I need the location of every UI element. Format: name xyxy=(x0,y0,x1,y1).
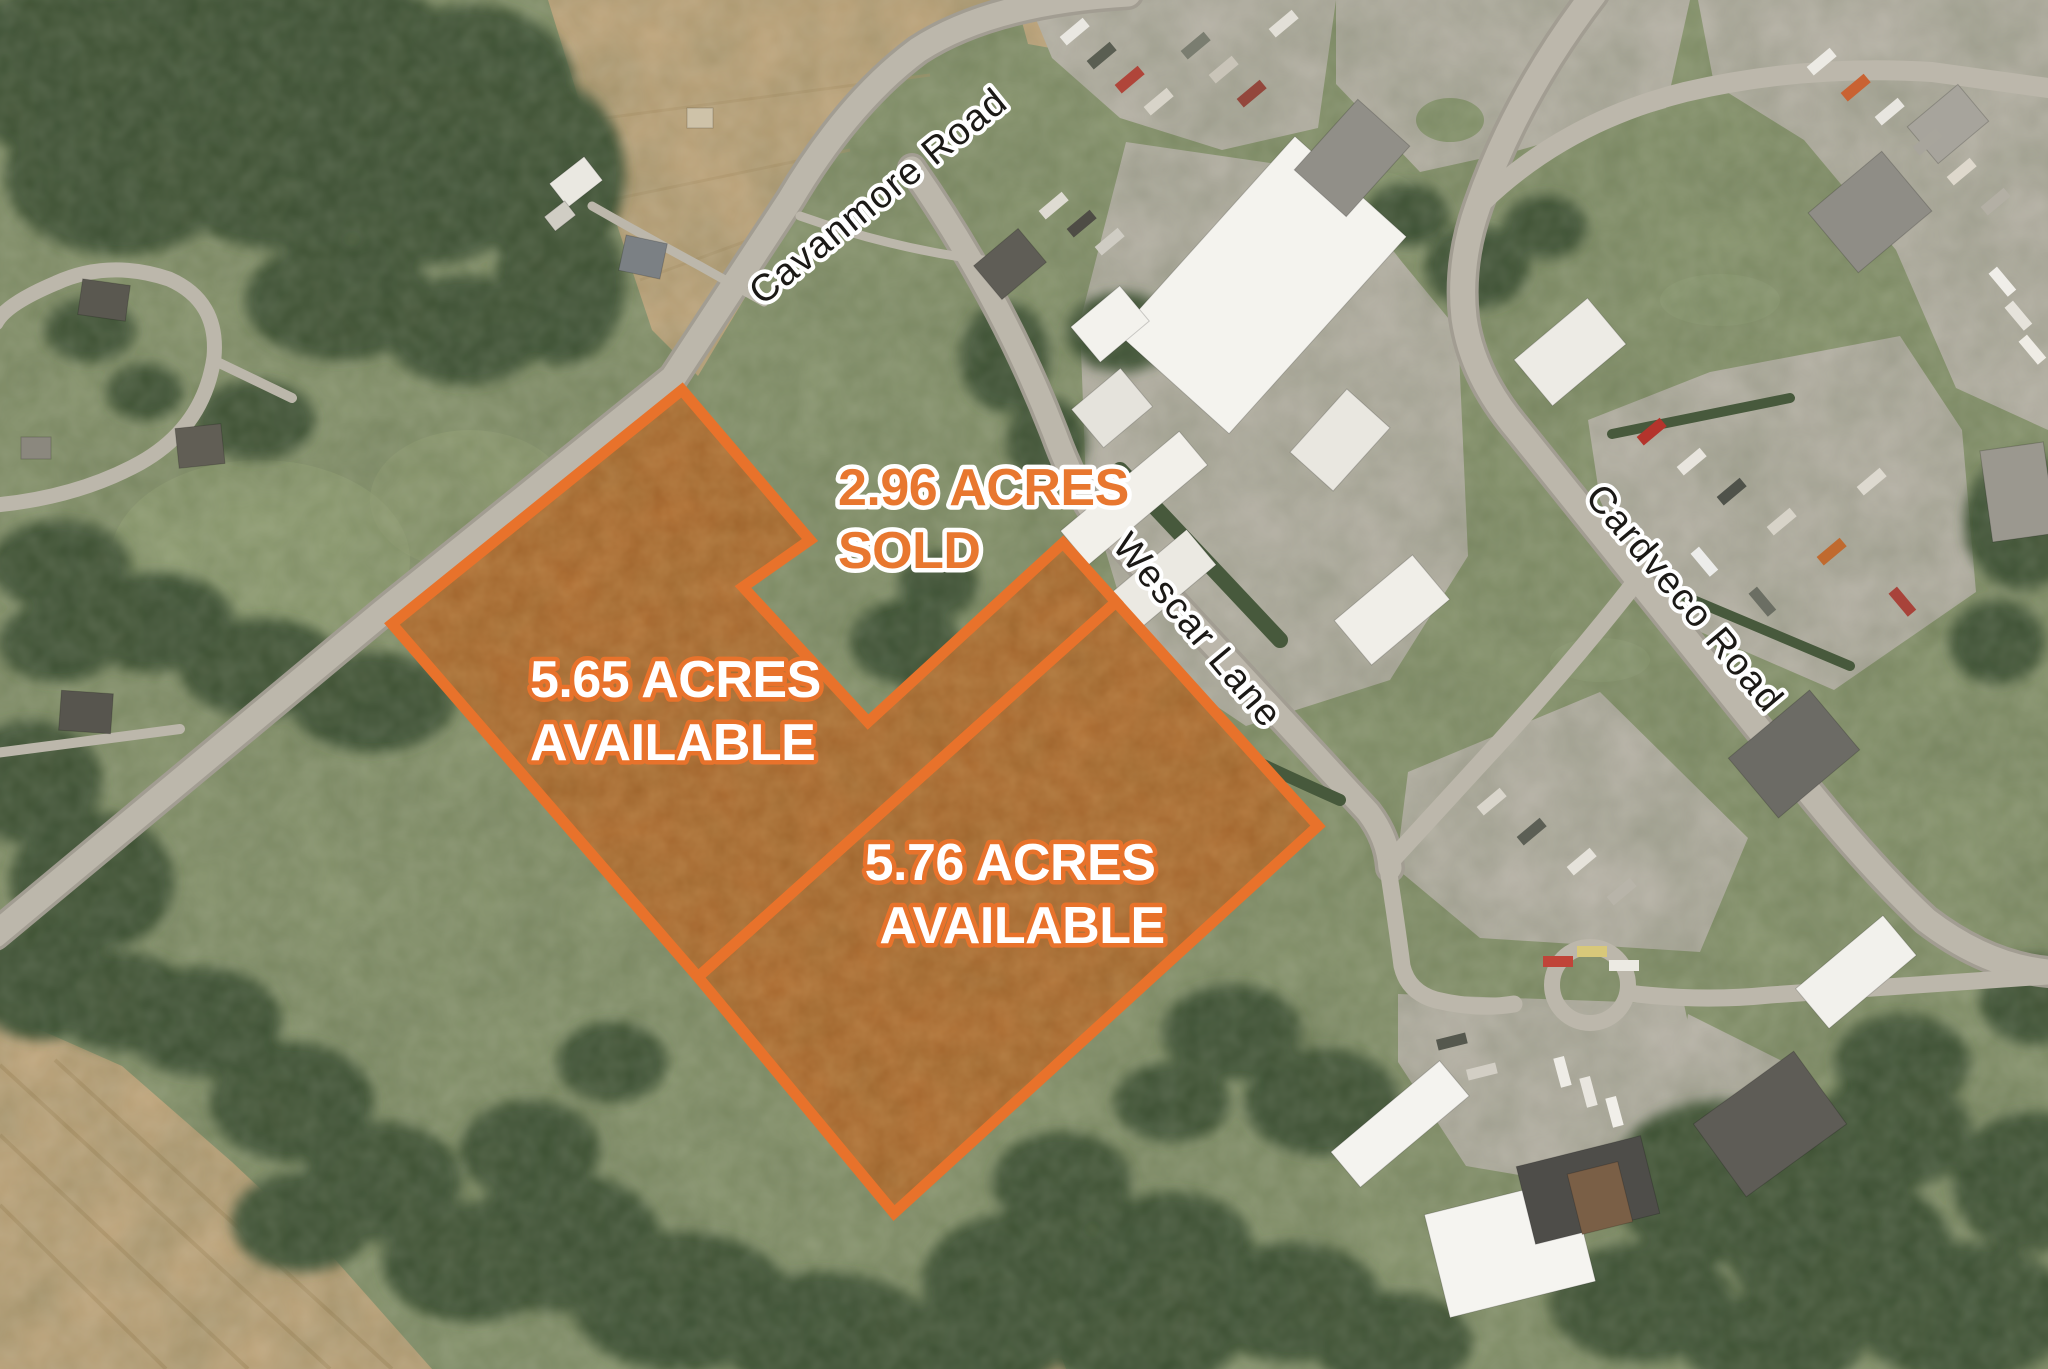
parcel-576-label-line1: 5.76 ACRES xyxy=(865,834,1156,892)
satellite-map: 2.96 ACRES SOLD 5.65 ACRES AVAILABLE 5.7… xyxy=(0,0,2048,1369)
parcel-576-label-line2: AVAILABLE xyxy=(879,897,1164,955)
parcel-sold-label-line1: 2.96 ACRES xyxy=(838,459,1129,517)
parcel-565-label-line2: AVAILABLE xyxy=(530,714,815,772)
aerial-listing-map: 2.96 ACRES SOLD 5.65 ACRES AVAILABLE 5.7… xyxy=(0,0,2048,1369)
parcel-sold-label-line2: SOLD xyxy=(838,522,980,580)
parcel-565-label-line1: 5.65 ACRES xyxy=(530,651,821,709)
